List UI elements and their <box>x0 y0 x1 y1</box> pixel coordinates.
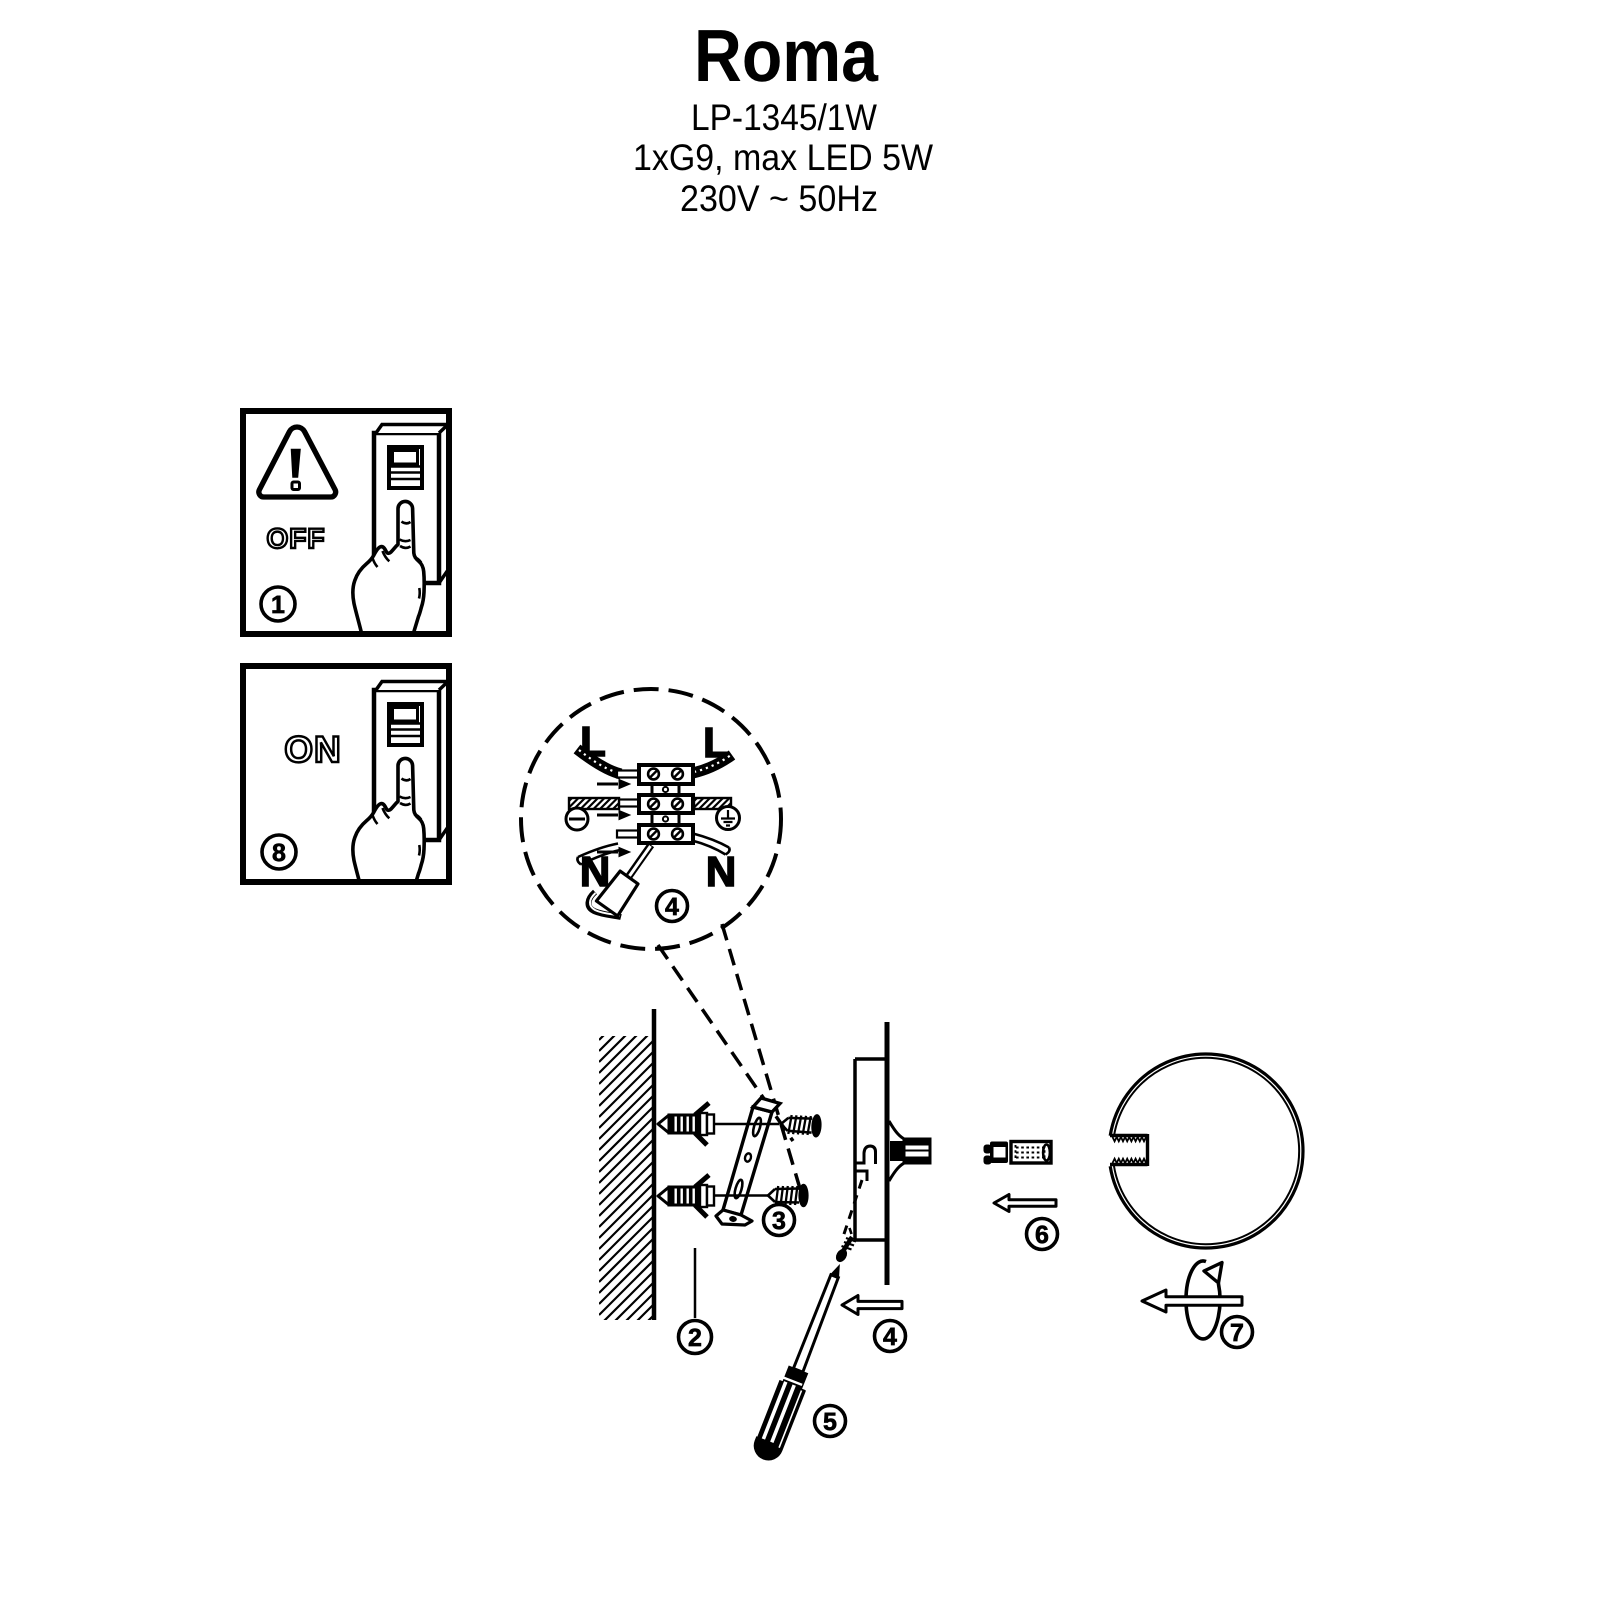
svg-text:4: 4 <box>883 1323 897 1351</box>
svg-text:Roma: Roma <box>694 14 879 97</box>
svg-text:8: 8 <box>272 839 286 867</box>
svg-text:N: N <box>706 848 736 895</box>
svg-text:ON: ON <box>284 729 342 770</box>
svg-text:3: 3 <box>772 1207 786 1235</box>
svg-text:LP-1345/1W: LP-1345/1W <box>691 97 877 138</box>
svg-text:2: 2 <box>688 1324 702 1352</box>
svg-text:OFF: OFF <box>267 523 326 554</box>
svg-text:230V ~ 50Hz: 230V ~ 50Hz <box>680 178 878 219</box>
svg-text:4: 4 <box>665 893 679 921</box>
svg-text:6: 6 <box>1035 1221 1049 1249</box>
svg-text:1: 1 <box>271 591 285 619</box>
svg-text:1xG9, max LED 5W: 1xG9, max LED 5W <box>633 137 933 178</box>
svg-text:7: 7 <box>1230 1319 1244 1347</box>
svg-text:5: 5 <box>823 1408 837 1436</box>
